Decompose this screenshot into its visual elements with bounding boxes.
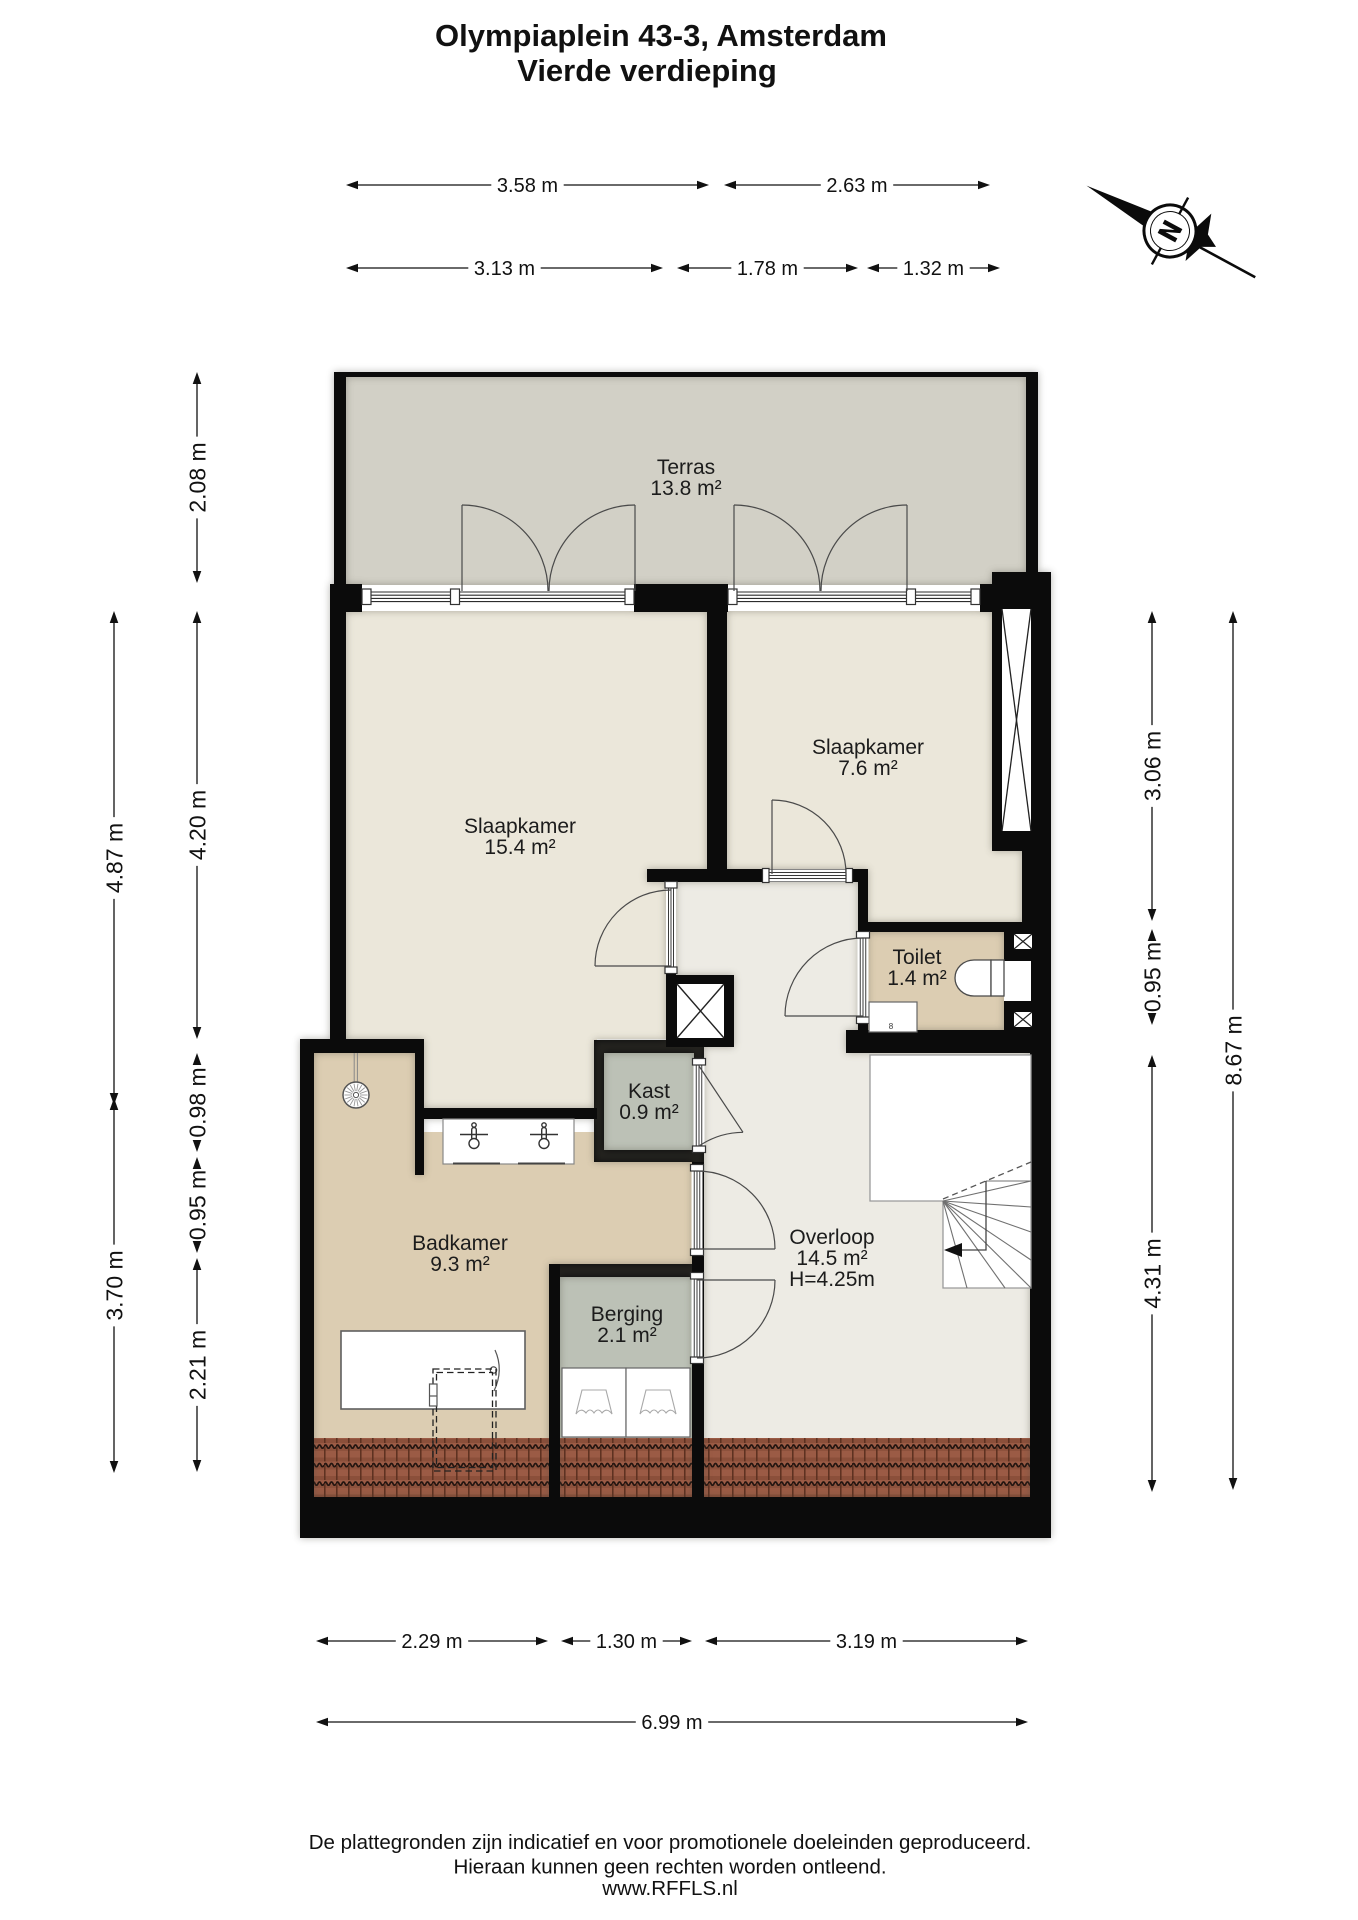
svg-text:Olympiaplein 43-3, Amsterdam: Olympiaplein 43-3, Amsterdam	[435, 18, 887, 53]
svg-text:13.8 m²: 13.8 m²	[650, 477, 721, 500]
svg-text:4.31 m: 4.31 m	[1139, 1238, 1165, 1308]
svg-text:De plattegronden zijn indicati: De plattegronden zijn indicatief en voor…	[309, 1831, 1032, 1854]
svg-text:9.3 m²: 9.3 m²	[430, 1253, 490, 1276]
svg-text:2.1 m²: 2.1 m²	[597, 1324, 657, 1347]
svg-text:2.63 m: 2.63 m	[826, 175, 887, 197]
svg-text:Berging: Berging	[591, 1303, 663, 1326]
svg-text:Slaapkamer: Slaapkamer	[464, 815, 576, 838]
svg-text:6.99 m: 6.99 m	[641, 1712, 702, 1734]
svg-text:3.70 m: 3.70 m	[101, 1250, 127, 1320]
svg-text:3.13 m: 3.13 m	[474, 258, 535, 280]
svg-text:3.06 m: 3.06 m	[1139, 731, 1165, 801]
svg-text:Overloop: Overloop	[789, 1226, 874, 1249]
svg-text:14.5 m²: 14.5 m²	[796, 1247, 867, 1270]
svg-text:0.98 m: 0.98 m	[184, 1067, 210, 1137]
svg-text:Terras: Terras	[657, 456, 715, 479]
svg-text:www.RFFLS.nl: www.RFFLS.nl	[601, 1877, 738, 1900]
svg-text:Vierde verdieping: Vierde verdieping	[517, 53, 777, 88]
svg-text:1.32 m: 1.32 m	[903, 258, 964, 280]
svg-text:4.87 m: 4.87 m	[101, 823, 127, 893]
svg-text:7.6 m²: 7.6 m²	[838, 757, 898, 780]
svg-text:H=4.25m: H=4.25m	[789, 1268, 875, 1291]
svg-text:1.4 m²: 1.4 m²	[887, 967, 947, 990]
svg-text:2.21 m: 2.21 m	[184, 1330, 210, 1400]
svg-text:8: 8	[889, 1022, 894, 1031]
svg-text:Badkamer: Badkamer	[412, 1232, 508, 1255]
svg-text:4.20 m: 4.20 m	[184, 790, 210, 860]
svg-text:1.78 m: 1.78 m	[737, 258, 798, 280]
svg-text:Slaapkamer: Slaapkamer	[812, 736, 924, 759]
svg-text:0.95 m: 0.95 m	[1139, 942, 1165, 1012]
svg-text:1.30 m: 1.30 m	[596, 1631, 657, 1653]
svg-text:3.58 m: 3.58 m	[497, 175, 558, 197]
svg-text:0.95 m: 0.95 m	[184, 1170, 210, 1240]
svg-text:Toilet: Toilet	[892, 946, 941, 969]
svg-text:15.4 m²: 15.4 m²	[484, 836, 555, 859]
svg-text:8.67 m: 8.67 m	[1220, 1015, 1246, 1085]
svg-text:Kast: Kast	[628, 1080, 670, 1103]
svg-text:0.9 m²: 0.9 m²	[619, 1101, 679, 1124]
svg-text:2.29 m: 2.29 m	[401, 1631, 462, 1653]
svg-text:Hieraan kunnen geen rechten wo: Hieraan kunnen geen rechten worden ontle…	[453, 1856, 886, 1879]
svg-text:2.08 m: 2.08 m	[184, 442, 210, 512]
svg-text:3.19 m: 3.19 m	[836, 1631, 897, 1653]
